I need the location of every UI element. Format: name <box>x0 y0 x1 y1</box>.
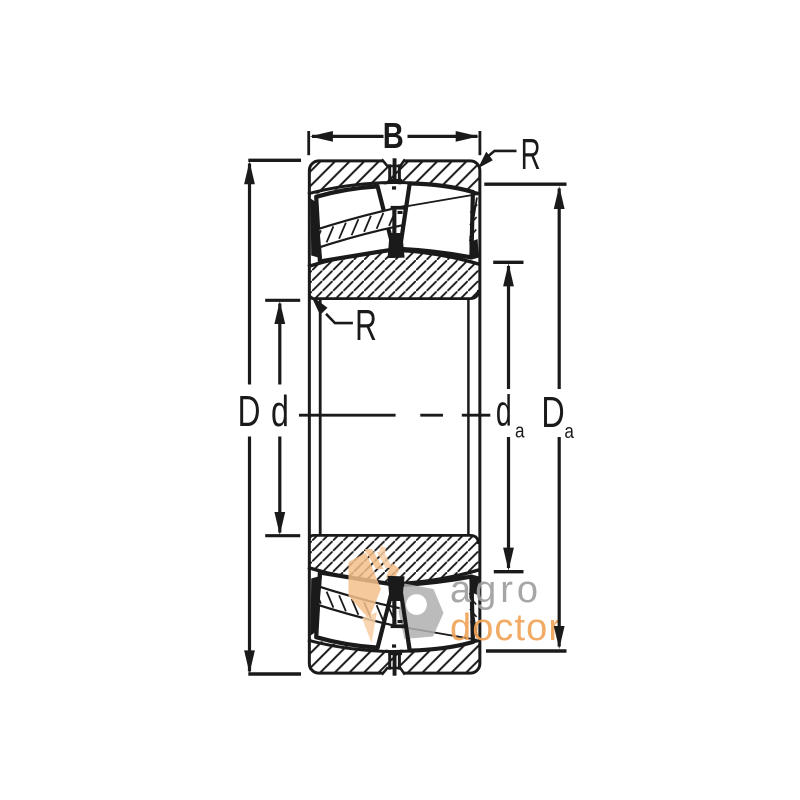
svg-text:d: d <box>496 387 512 436</box>
svg-text:d: d <box>271 387 289 436</box>
svg-text:B: B <box>383 115 404 156</box>
svg-text:R: R <box>521 130 541 179</box>
svg-text:a: a <box>564 420 574 443</box>
svg-text:D: D <box>238 387 261 436</box>
svg-text:D: D <box>541 388 564 437</box>
svg-text:a: a <box>515 419 525 442</box>
svg-text:R: R <box>355 301 377 350</box>
svg-text:agro: agro <box>450 569 538 611</box>
svg-text:doctor: doctor <box>450 607 561 649</box>
